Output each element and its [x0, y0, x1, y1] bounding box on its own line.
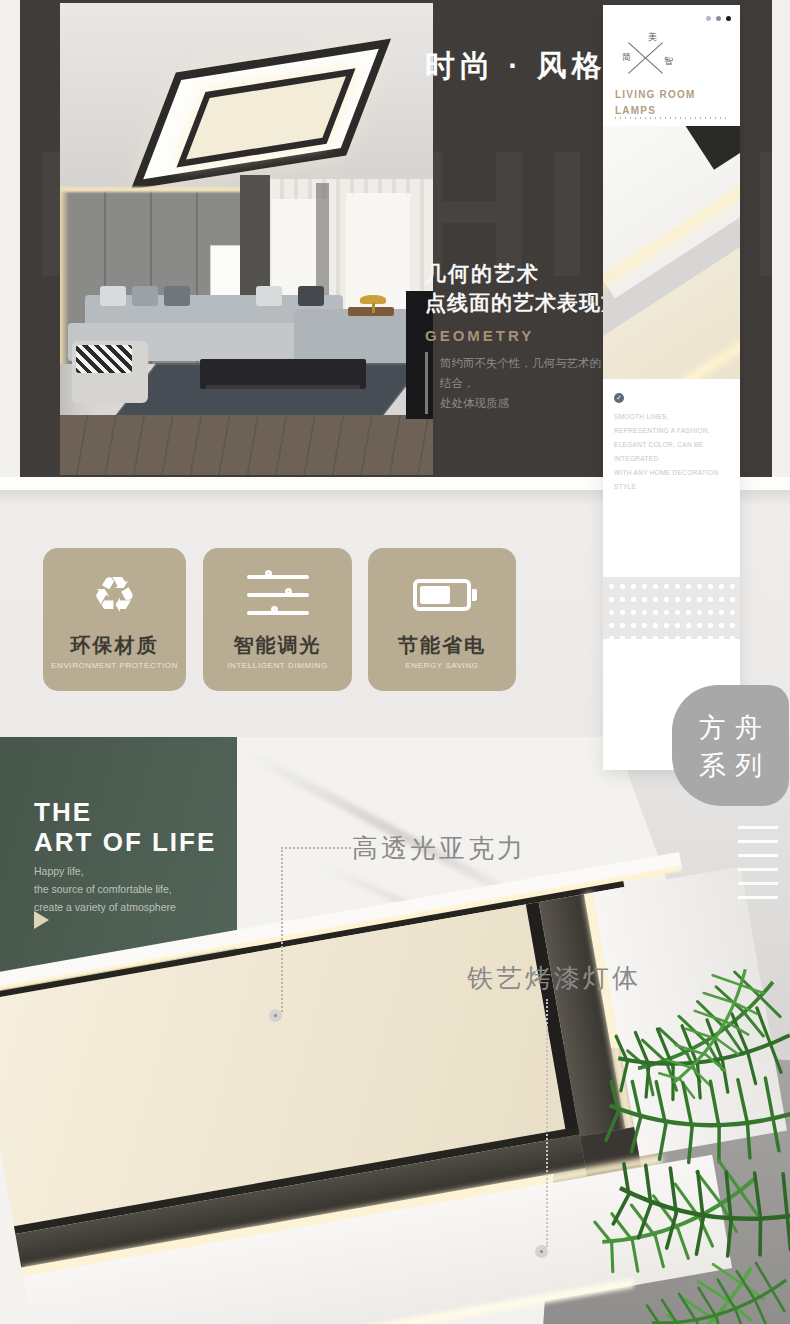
room-window	[346, 193, 410, 325]
play-triangle-icon	[34, 911, 49, 929]
callout-connector	[281, 847, 283, 1012]
dot-blue	[706, 16, 711, 21]
living-room-photo	[60, 3, 433, 475]
feature-card-eco: ♻ 环保材质 ENVIRONMENT PROTECTION	[43, 548, 186, 691]
series-badge-line2: 系列	[672, 747, 789, 785]
tagline-line2: LAMPS	[615, 103, 695, 119]
feature-title: 智能调光	[203, 632, 352, 659]
dot-black	[726, 16, 731, 21]
wood-floor	[60, 415, 433, 475]
check-circle-icon: ✓	[614, 393, 624, 403]
brand-card: 美 简 智 LIVING ROOM LAMPS ✓ SMOOTH LINES, …	[603, 5, 740, 770]
logo-char-right: 智	[664, 55, 673, 68]
geometry-art-title: 几何的艺术	[425, 260, 540, 288]
product-detail-page: FASHION	[0, 0, 790, 1324]
sofa-pillow	[132, 286, 158, 306]
hero-title: 时尚 · 风格	[425, 46, 607, 87]
brand-logo: 美 简 智	[617, 31, 675, 87]
dimmer-sliders-icon	[203, 562, 352, 628]
side-table	[348, 307, 394, 316]
lifestyle-heading: THE ART OF LIFE	[34, 797, 216, 857]
callout-connector	[546, 999, 548, 1247]
geometry-description-line2: 处处体现质感	[440, 393, 605, 413]
tagline-line1: LIVING ROOM	[615, 87, 695, 103]
dot-mauve	[716, 16, 721, 21]
decorative-dashes	[738, 826, 778, 910]
geometry-label-en: GEOMETRY	[425, 327, 534, 344]
decorative-dots	[706, 16, 731, 21]
geometry-description: 简约而不失个性，几何与艺术的结合， 处处体现质感	[425, 352, 605, 414]
brand-tagline: LIVING ROOM LAMPS	[615, 87, 695, 118]
sofa-pillow	[100, 286, 126, 306]
note-line: SMOOTH LINES,	[614, 410, 734, 424]
note-line: REPRESENTING A FASHION,	[614, 424, 734, 438]
feature-card-dimming: 智能调光 INTELLIGENT DIMMING	[203, 548, 352, 691]
dotted-divider	[615, 117, 728, 119]
feature-subtitle: ENERGY SAVING	[368, 661, 516, 670]
sofa-pillow	[256, 286, 282, 306]
feature-card-energy: 节能省电 ENERGY SAVING	[368, 548, 516, 691]
geometry-description-line1: 简约而不失个性，几何与艺术的结合，	[440, 353, 605, 393]
callout-connector	[281, 847, 351, 849]
sofa-pillow	[298, 286, 324, 306]
callout-marker	[269, 1009, 282, 1022]
series-badge: 方舟 系列	[672, 685, 789, 806]
lifestyle-section: THE ART OF LIFE Happy life, the source o…	[0, 737, 790, 1324]
dot-grid-pattern	[603, 577, 740, 639]
note-line: ELEGANT COLOR, CAN BE INTEGRATED	[614, 438, 734, 466]
palm-plant	[575, 969, 790, 1324]
feature-subtitle: INTELLIGENT DIMMING	[203, 661, 352, 670]
feature-subtitle: ENVIRONMENT PROTECTION	[43, 661, 186, 670]
lifestyle-subtext-line1: Happy life,	[34, 863, 176, 881]
callout-acrylic: 高透光亚克力	[352, 831, 526, 866]
sofa-pillow	[164, 286, 190, 306]
logo-char-left: 简	[622, 51, 631, 64]
lifestyle-subtext-line3: create a variety of atmosphere	[34, 899, 176, 917]
note-line: WITH ANY HOME DECORATION STYLE	[614, 466, 734, 494]
lifestyle-heading-line2: ART OF LIFE	[34, 827, 216, 857]
coffee-table-shelf	[206, 385, 360, 389]
callout-marker	[535, 1245, 548, 1258]
feature-title: 环保材质	[43, 632, 186, 659]
logo-char-top: 美	[648, 31, 657, 44]
lifestyle-subtext-line2: the source of comfortable life,	[34, 881, 176, 899]
houndstooth-throw	[76, 345, 132, 373]
lifestyle-heading-line1: THE	[34, 797, 216, 827]
gold-table-lamp-stem	[372, 303, 375, 313]
lamp-detail-photo	[603, 126, 740, 379]
feature-title: 节能省电	[368, 632, 516, 659]
brand-note: SMOOTH LINES, REPRESENTING A FASHION, EL…	[614, 410, 734, 494]
lifestyle-subtext: Happy life, the source of comfortable li…	[34, 863, 176, 917]
sofa-chaise	[294, 309, 420, 363]
battery-icon	[368, 562, 516, 628]
series-badge-line1: 方舟	[672, 709, 789, 747]
room-cove-light	[60, 187, 256, 192]
recycle-icon: ♻	[43, 562, 186, 628]
